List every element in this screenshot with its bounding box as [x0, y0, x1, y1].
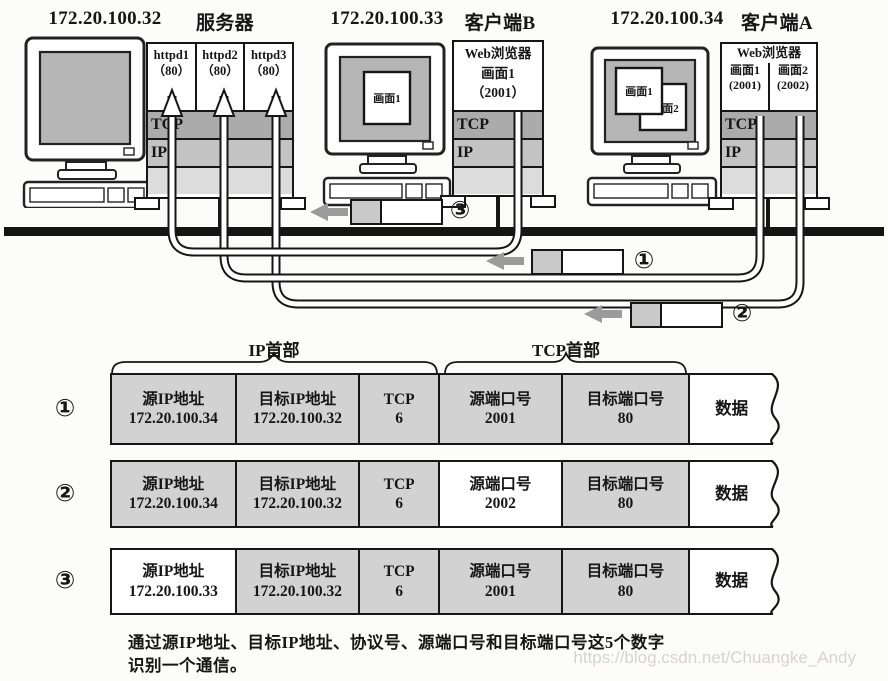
cell-title: 目标端口号 — [587, 475, 665, 494]
cell-value: 6 — [395, 582, 403, 601]
cell-value: 80 — [618, 494, 634, 513]
table-cell-data: 数据 — [688, 375, 773, 443]
stack-foot — [134, 197, 160, 210]
cell-title: 源IP地址 — [142, 475, 204, 494]
session-port: (2001) — [722, 78, 768, 94]
clientB-computer-icon: 画面1 — [320, 38, 454, 208]
session-1: 画面1 (2001) — [722, 63, 768, 110]
cell-value: 80 — [618, 409, 634, 428]
caption-line-2: 识别一个通信。 — [128, 652, 528, 676]
table-cell: 源IP地址 172.20.100.34 — [112, 375, 235, 443]
cell-title: 数据 — [715, 571, 748, 592]
session-port: (2002) — [770, 78, 816, 94]
server-title: 服务器 — [185, 8, 265, 35]
cell-title: 源端口号 — [469, 475, 531, 494]
packet-header-segment — [632, 304, 662, 326]
cell-value: 172.20.100.32 — [253, 409, 342, 428]
stack-foot — [280, 197, 306, 210]
ip-band: IP — [722, 138, 816, 166]
clientB-title: 客户端B — [455, 8, 545, 35]
power-button-icon — [423, 142, 433, 149]
table-cell: 源IP地址 172.20.100.33 — [112, 550, 235, 613]
stack-foot — [530, 195, 556, 208]
cell-title: 数据 — [715, 399, 748, 420]
browser-cell: Web浏览器 画面1 (2001) 画面2 (2002) — [722, 44, 816, 110]
monitor-stand — [66, 162, 106, 170]
ip-band: IP — [454, 138, 542, 166]
table-cell: 目标IP地址 172.20.100.32 — [235, 550, 359, 613]
app-window-1-label: 画面1 — [625, 85, 653, 98]
cell-title: TCP — [384, 562, 415, 581]
httpd3-cell: httpd3 （80） — [243, 44, 292, 110]
app-port: （80） — [153, 63, 191, 79]
httpd1-cell: httpd1 （80） — [148, 44, 195, 110]
tcp-band: TCP — [722, 110, 816, 138]
clientA-protocol-stack: Web浏览器 画面1 (2001) 画面2 (2002) TCP IP — [720, 42, 818, 199]
clientB-ip-label: 172.20.100.33 — [312, 8, 462, 30]
cell-value: 6 — [395, 409, 403, 428]
session-name: 画面2 — [770, 63, 816, 79]
table-cell: TCP 6 — [358, 375, 438, 443]
cell-value: 80 — [618, 582, 634, 601]
app-port: （80） — [250, 63, 288, 79]
table-cell: 源端口号 2001 — [438, 375, 561, 443]
table-cell: TCP 6 — [358, 462, 438, 526]
cell-value: 172.20.100.32 — [253, 494, 342, 513]
app-name: httpd3 — [251, 47, 286, 63]
table-cell: TCP 6 — [358, 550, 438, 613]
monitor-base — [624, 164, 680, 173]
httpd2-cell: httpd2 （80） — [195, 44, 244, 110]
table-row-badge: ① — [48, 396, 82, 420]
browser-label: Web浏览器 — [465, 44, 532, 64]
monitor-base — [58, 170, 116, 179]
cell-title: TCP — [384, 390, 415, 409]
cell-value: 2002 — [485, 494, 516, 513]
session-port: （2001） — [471, 83, 525, 103]
clientA-computer-icon: 画面2 画面1 — [586, 42, 720, 210]
packet-number-badge: ② — [725, 301, 759, 325]
monitor-stand — [632, 156, 670, 164]
packet-2 — [630, 302, 723, 328]
table-cell-data: 数据 — [688, 550, 773, 613]
table-cell: 源端口号 2001 — [438, 550, 561, 613]
cell-title: 目标IP地址 — [259, 390, 337, 409]
monitor-stand — [368, 156, 406, 164]
ip-band: IP — [148, 138, 292, 166]
phy-band — [148, 166, 292, 194]
server-app-row: httpd1 （80） httpd2 （80） httpd3 （80） — [148, 44, 292, 110]
table-row-badge: ③ — [48, 568, 82, 592]
stack-connector — [496, 197, 500, 229]
table-cell: 源端口号 2002 — [438, 462, 561, 526]
packet-3 — [350, 199, 443, 225]
table-row-badge: ② — [48, 481, 82, 505]
server-protocol-stack: httpd1 （80） httpd2 （80） httpd3 （80） TCP … — [146, 42, 294, 199]
cell-title: 源端口号 — [469, 390, 531, 409]
cell-title: TCP — [384, 475, 415, 494]
left-arrow-icon — [584, 305, 622, 323]
app-name: httpd1 — [154, 47, 189, 63]
packet-1 — [531, 249, 624, 275]
table-cell: 目标IP地址 172.20.100.32 — [235, 462, 359, 526]
table-row: 源IP地址 172.20.100.34 目标IP地址 172.20.100.32… — [110, 460, 773, 528]
table-cell: 目标端口号 80 — [561, 462, 689, 526]
table-row: 源IP地址 172.20.100.33 目标IP地址 172.20.100.32… — [110, 548, 773, 615]
browser-label: Web浏览器 — [722, 44, 816, 63]
clientB-protocol-stack: Web浏览器 画面1 （2001） TCP IP — [452, 40, 544, 197]
packet-number-badge: ① — [627, 248, 661, 272]
cell-title: 目标端口号 — [587, 390, 665, 409]
table-cell-data: 数据 — [688, 462, 773, 526]
table-cell: 目标IP地址 172.20.100.32 — [235, 375, 359, 443]
session-2: 画面2 (2002) — [768, 63, 816, 110]
app-port: （80） — [201, 63, 239, 79]
monitor-base — [360, 164, 416, 173]
tcp-band: TCP — [454, 110, 542, 138]
app-window-label: 画面1 — [373, 92, 401, 105]
browser-cell: Web浏览器 画面1 （2001） — [454, 42, 542, 110]
tcp-header-group-label: TCP首部 — [506, 336, 626, 361]
cell-title: 数据 — [715, 484, 748, 505]
server-computer-icon — [20, 30, 156, 208]
ip-header-group-label: IP首部 — [214, 336, 334, 361]
packet-header-segment — [352, 201, 382, 223]
clientA-title: 客户端A — [732, 8, 822, 35]
network-diagram: 172.20.100.32 服务器 172.20.100.33 客户端B 172… — [0, 0, 888, 681]
crt-screen — [40, 52, 130, 144]
power-button-icon — [688, 142, 698, 149]
table-cell: 目标端口号 80 — [561, 375, 689, 443]
cell-value: 2001 — [485, 582, 516, 601]
cell-title: 目标IP地址 — [259, 562, 337, 581]
phy-band — [722, 166, 816, 194]
packet-number-badge: ③ — [443, 198, 477, 222]
cell-title: 源IP地址 — [142, 562, 204, 581]
power-button-icon — [124, 148, 134, 155]
stack-foot — [708, 197, 734, 210]
cell-value: 172.20.100.33 — [129, 582, 218, 601]
tcp-band: TCP — [148, 110, 292, 138]
cell-value: 2001 — [485, 409, 516, 428]
phy-band — [454, 166, 542, 194]
ethernet-line — [4, 227, 884, 236]
packet-header-segment — [533, 251, 563, 273]
clientA-ip-label: 172.20.100.34 — [592, 8, 742, 30]
cell-title: 目标IP地址 — [259, 475, 337, 494]
cell-title: 目标端口号 — [587, 562, 665, 581]
stack-foot — [804, 197, 830, 210]
cell-title: 源IP地址 — [142, 390, 204, 409]
watermark: https://blog.csdn.net/Chuangke_Andy — [470, 648, 856, 668]
table-cell: 目标端口号 80 — [561, 550, 689, 613]
app-name: httpd2 — [202, 47, 237, 63]
cell-value: 172.20.100.34 — [129, 409, 218, 428]
session-name: 画面1 — [722, 63, 768, 79]
table-cell: 源IP地址 172.20.100.34 — [112, 462, 235, 526]
server-ip-label: 172.20.100.32 — [30, 8, 180, 30]
cell-value: 172.20.100.32 — [253, 582, 342, 601]
stack-connector — [218, 199, 222, 229]
table-row: 源IP地址 172.20.100.34 目标IP地址 172.20.100.32… — [110, 373, 773, 445]
cell-value: 172.20.100.34 — [129, 494, 218, 513]
cell-value: 6 — [395, 494, 403, 513]
cell-title: 源端口号 — [469, 562, 531, 581]
session-name: 画面1 — [481, 64, 515, 84]
stack-connector — [766, 199, 770, 229]
left-arrow-icon — [486, 252, 524, 270]
